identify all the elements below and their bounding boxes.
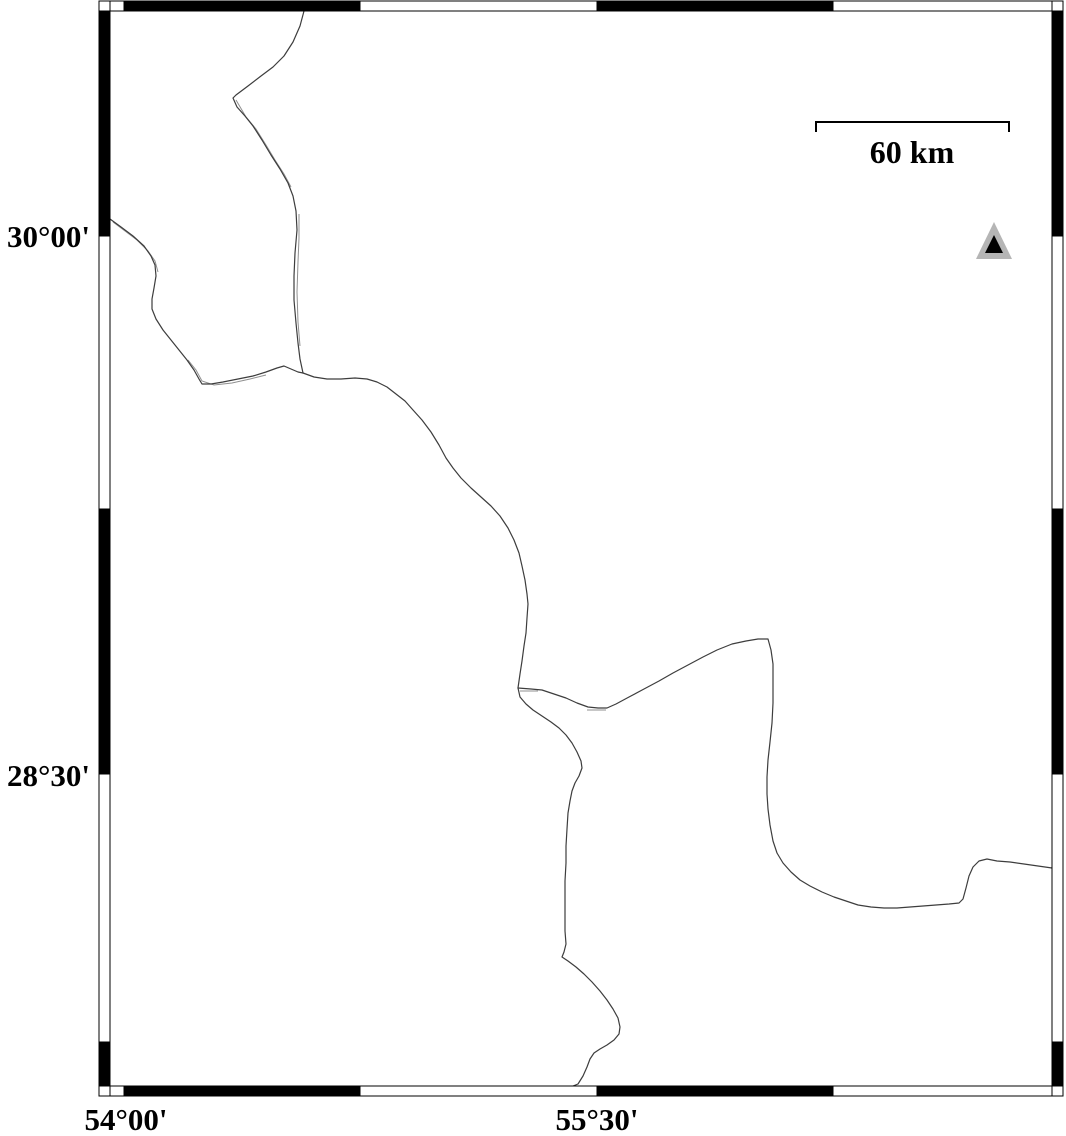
frame-corner [99, 1, 110, 11]
latitude-label-28-30: 28°30' [7, 760, 90, 791]
boundary-line-south [518, 688, 620, 1086]
scale-bar-bracket [816, 122, 1009, 132]
boundary-line-west [110, 219, 303, 384]
longitude-label-55-30: 55°30' [555, 1104, 638, 1135]
frame-segment-black [597, 1086, 833, 1096]
frame-segment-black [99, 11, 110, 236]
frame-segment-black [597, 1, 833, 11]
frame-segment-black [1052, 11, 1063, 236]
boundary-line-east [518, 639, 1052, 908]
frame-segment-black [1052, 1042, 1063, 1086]
station-marker-group [976, 222, 1012, 259]
frame-segment-black [1052, 509, 1063, 774]
longitude-label-54-00: 54°00' [84, 1104, 167, 1135]
boundary-lines-group [110, 11, 1052, 1086]
frame-corner [99, 1086, 110, 1096]
frame-segment-black [124, 1086, 360, 1096]
map-figure: 30°00' 28°30' 54°00' 55°30' 60 km [0, 0, 1066, 1136]
scale-bar-label: 60 km [870, 136, 954, 168]
boundary-line-central [303, 373, 528, 688]
frame-segment-black [99, 1042, 110, 1086]
frame-corner [1052, 1, 1063, 11]
frame-corner [1052, 1086, 1063, 1096]
frame-segment-black [124, 1, 360, 11]
map-canvas [0, 0, 1066, 1136]
scale-bar-group [816, 122, 1009, 132]
frame-segment-black [99, 509, 110, 774]
boundary-line-ghost [113, 222, 158, 272]
boundary-line-north [233, 11, 304, 373]
boundary-line-ghost [297, 214, 300, 346]
latitude-label-30-00: 30°00' [7, 221, 90, 252]
